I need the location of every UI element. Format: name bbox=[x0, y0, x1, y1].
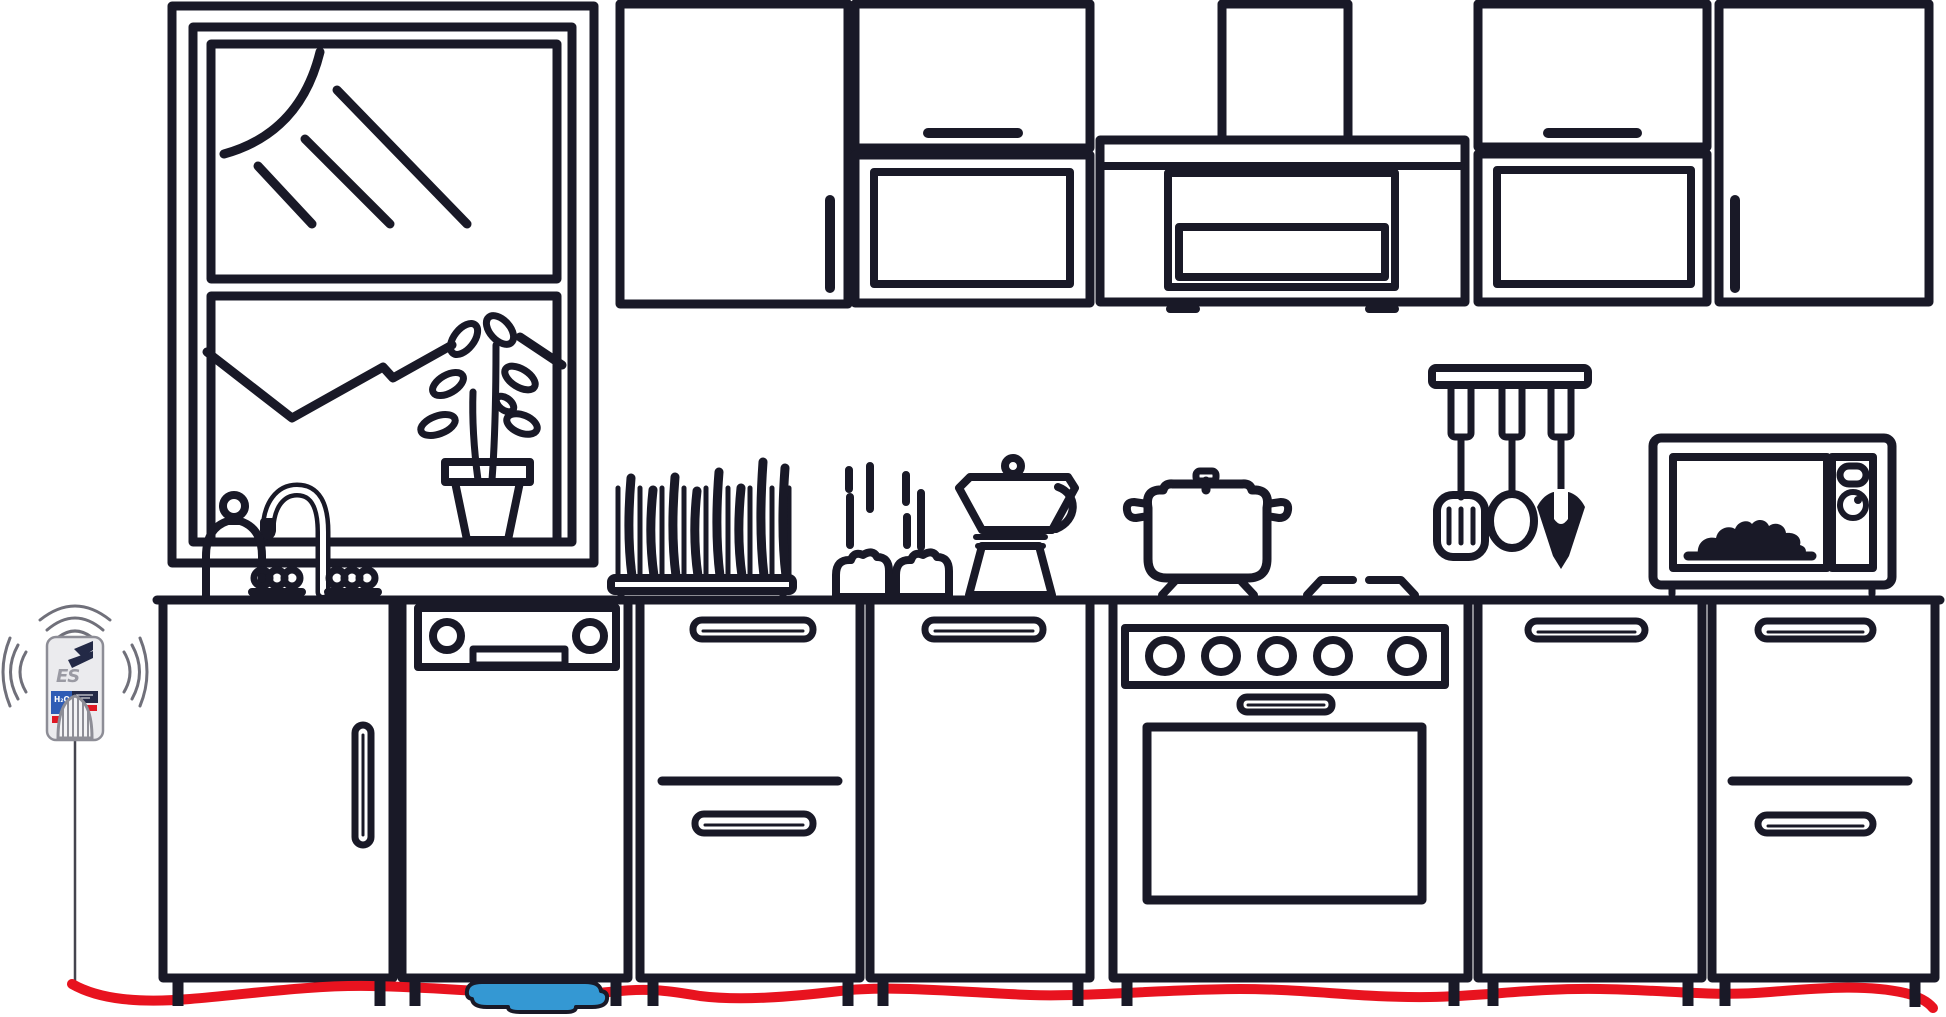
stove-knob bbox=[1205, 640, 1237, 672]
dish-rack bbox=[611, 462, 793, 599]
gas-burners bbox=[1162, 580, 1415, 595]
potted-plant bbox=[418, 311, 540, 540]
cooking-pot bbox=[1127, 471, 1288, 578]
illustration-canvas: ES H₂O bbox=[0, 0, 1946, 1017]
device-brand: ES bbox=[56, 666, 79, 687]
microwave-button bbox=[1840, 466, 1866, 484]
moka-pot bbox=[959, 458, 1075, 595]
stove-knob bbox=[1149, 640, 1181, 672]
leak-cable bbox=[72, 984, 1933, 1008]
upper-cabinets-left bbox=[620, 4, 1090, 304]
kitchen-illustration: ES H₂O bbox=[0, 0, 1946, 1017]
water-puddle bbox=[467, 982, 607, 1012]
toast bbox=[836, 552, 949, 597]
sun-icon bbox=[224, 52, 467, 224]
base-cabinet-tall bbox=[163, 600, 393, 978]
steam bbox=[849, 466, 921, 547]
stove-oven bbox=[1113, 600, 1468, 978]
leak-sensor-device: ES H₂O bbox=[47, 637, 103, 740]
microwave-knob bbox=[1840, 492, 1866, 518]
drawer-handle bbox=[1528, 621, 1645, 639]
kitchen-line-art bbox=[157, 4, 1940, 978]
stove-knob bbox=[1317, 640, 1349, 672]
fork-icon bbox=[1537, 489, 1585, 569]
base-cabinet-right bbox=[1478, 600, 1702, 978]
dishwasher bbox=[402, 600, 628, 978]
range-hood bbox=[1100, 4, 1465, 309]
food-plate bbox=[1698, 520, 1806, 556]
spatula-icon bbox=[1437, 495, 1485, 557]
utensil-rack bbox=[1432, 368, 1588, 569]
drawer-unit-right bbox=[1712, 600, 1935, 978]
oven-door bbox=[1147, 727, 1422, 900]
dishwasher-panel bbox=[418, 608, 616, 667]
microwave bbox=[1653, 438, 1892, 594]
knob-panel bbox=[1125, 628, 1445, 685]
drawer-unit bbox=[640, 600, 860, 978]
upper-cabinets-right bbox=[1478, 4, 1929, 302]
stove-knob bbox=[1391, 640, 1423, 672]
drawer-handle bbox=[1758, 815, 1873, 833]
spoon-icon bbox=[1490, 494, 1534, 548]
drawer-handle bbox=[1758, 621, 1873, 639]
base-cabinet-door bbox=[870, 600, 1090, 978]
stove-knob bbox=[1261, 640, 1293, 672]
